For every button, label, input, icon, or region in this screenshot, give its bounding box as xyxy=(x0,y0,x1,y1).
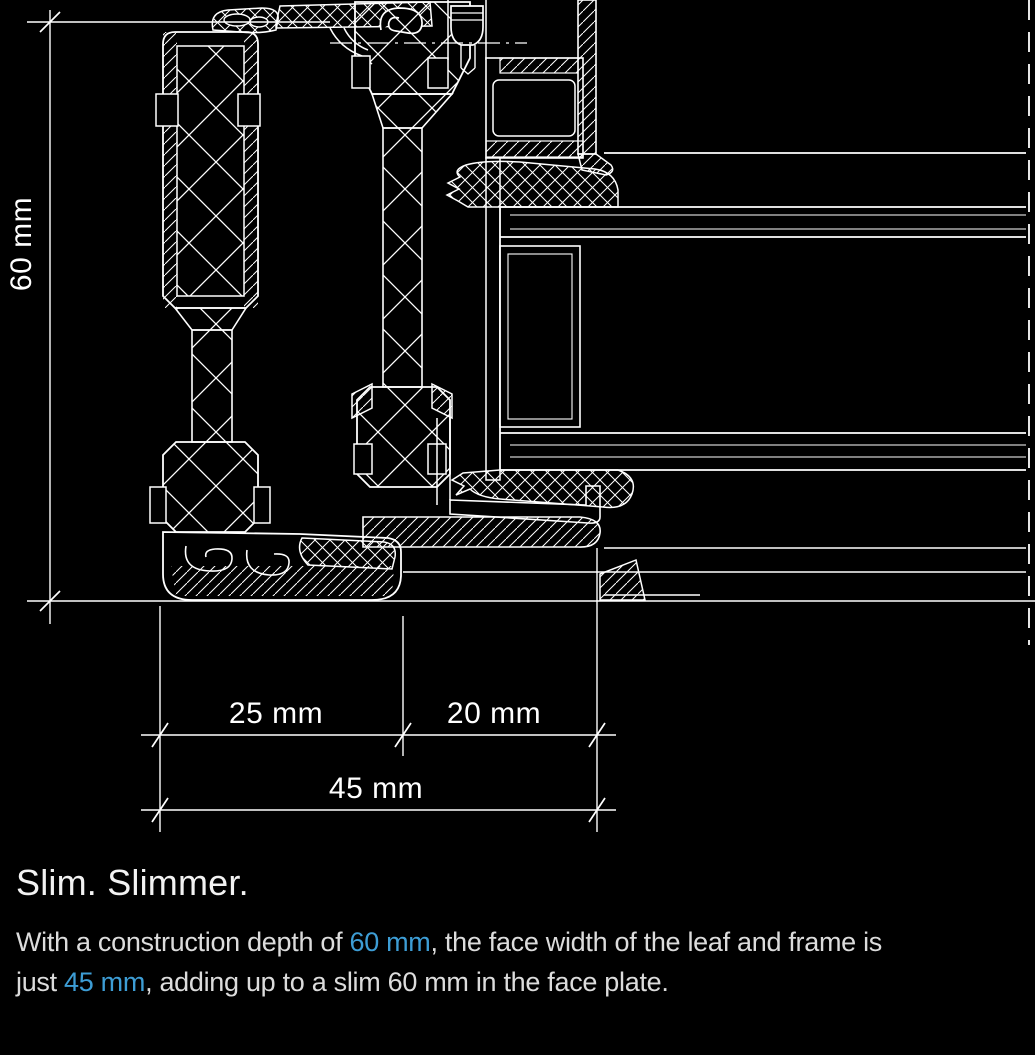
dimension-total-face: 45 mm xyxy=(141,772,616,822)
page: 60 mm 25 mm 20 mm 45 mm xyxy=(0,0,1035,1055)
frame-tab-right xyxy=(254,487,270,523)
dim-20-label: 20 mm xyxy=(447,697,541,730)
glazing-bead-leg xyxy=(578,0,596,154)
frame-inner-shell xyxy=(163,442,258,532)
frame-tab-left xyxy=(150,487,166,523)
leaf-upper-notch-left xyxy=(352,56,370,88)
glass-pane-inner-inner-lines xyxy=(510,445,1026,457)
paragraph-text: just xyxy=(16,967,64,997)
frame-thermal-strut xyxy=(192,330,232,442)
leaf-upper-notch-right xyxy=(428,58,448,88)
glass-pane-inner xyxy=(500,433,1026,470)
paragraph-text: , adding up to a slim 60 mm in the face … xyxy=(145,967,669,997)
leaf-bottom-flange xyxy=(363,517,600,547)
bead-flange-hatch-top xyxy=(500,58,578,73)
dimension-face-widths: 25 mm 20 mm xyxy=(141,697,616,747)
description-paragraph: With a construction depth of 60 mm, the … xyxy=(16,922,1019,1002)
paragraph-line: With a construction depth of 60 mm, the … xyxy=(16,922,1019,962)
glass-pane-outer-inner-lines xyxy=(510,215,1026,229)
paragraph-text: With a construction depth of xyxy=(16,927,349,957)
page-title: Slim. Slimmer. xyxy=(16,861,1019,905)
dim-25-label: 25 mm xyxy=(229,697,323,730)
paragraph-line: just 45 mm, adding up to a slim 60 mm in… xyxy=(16,962,1019,1002)
highlighted-dimension-value: 60 mm xyxy=(349,927,430,957)
frame-shoulder xyxy=(175,308,246,330)
bead-flange-hatch-bottom xyxy=(486,141,583,157)
dim-60-label: 60 mm xyxy=(5,197,38,291)
frame-wall-hatch-right xyxy=(244,32,258,308)
frame-wall-notch-right xyxy=(238,94,260,126)
paragraph-text: , the face width of the leaf and frame i… xyxy=(431,927,882,957)
highlighted-dimension-value: 45 mm xyxy=(64,967,145,997)
glass-pane-outer xyxy=(500,207,1026,237)
leaf-lower-notch-left xyxy=(354,444,372,474)
dim-45-label: 45 mm xyxy=(329,772,423,805)
section-drawing: 60 mm 25 mm 20 mm 45 mm xyxy=(0,0,1035,845)
frame-wall-notch-left xyxy=(156,94,178,126)
copy-block: Slim. Slimmer. With a construction depth… xyxy=(0,861,1035,1002)
glazing-gasket-top xyxy=(447,161,618,207)
leaf-shoulder xyxy=(372,94,452,128)
frame-top-gasket-curl xyxy=(224,14,250,26)
frame-profile xyxy=(150,8,401,600)
glazing-spacer xyxy=(500,246,580,427)
frame-insulation-core xyxy=(177,46,244,296)
bead-clip-cavity xyxy=(493,80,575,136)
frame-wall-hatch-left xyxy=(163,32,177,308)
leaf-thermal-strut xyxy=(383,128,422,387)
sill-cap xyxy=(600,560,645,600)
screw-head xyxy=(451,6,483,45)
